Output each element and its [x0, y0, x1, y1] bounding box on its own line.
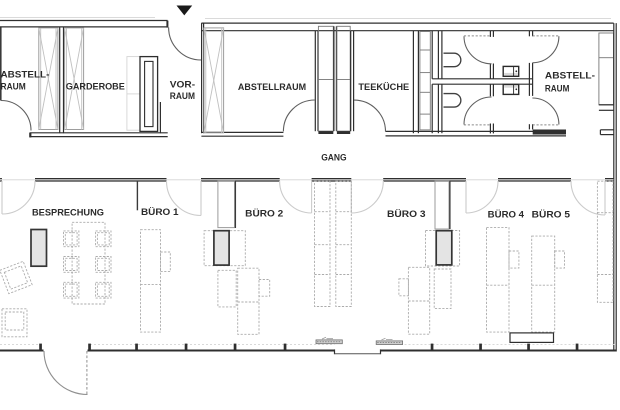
- svg-text:BÜRO 5: BÜRO 5: [532, 210, 571, 221]
- svg-text:BÜRO 1: BÜRO 1: [141, 207, 179, 218]
- svg-text:BÜRO 3: BÜRO 3: [387, 209, 426, 220]
- svg-text:BÜRO 4: BÜRO 4: [488, 210, 525, 221]
- svg-text:VOR-: VOR-: [170, 80, 195, 91]
- svg-text:ABSTELL-: ABSTELL-: [1, 70, 50, 81]
- svg-text:RAUM: RAUM: [545, 83, 570, 94]
- svg-text:TEEKÜCHE: TEEKÜCHE: [358, 82, 409, 93]
- svg-text:GARDEROBE: GARDEROBE: [66, 82, 126, 93]
- svg-text:BÜRO 2: BÜRO 2: [245, 209, 283, 220]
- svg-text:BESPRECHUNG: BESPRECHUNG: [32, 208, 104, 219]
- svg-text:ABSTELL-: ABSTELL-: [545, 71, 595, 82]
- svg-text:RAUM: RAUM: [1, 82, 26, 93]
- svg-text:GANG: GANG: [321, 152, 346, 163]
- svg-text:ABSTELLRAUM: ABSTELLRAUM: [238, 82, 306, 93]
- svg-text:RAUM: RAUM: [170, 91, 195, 102]
